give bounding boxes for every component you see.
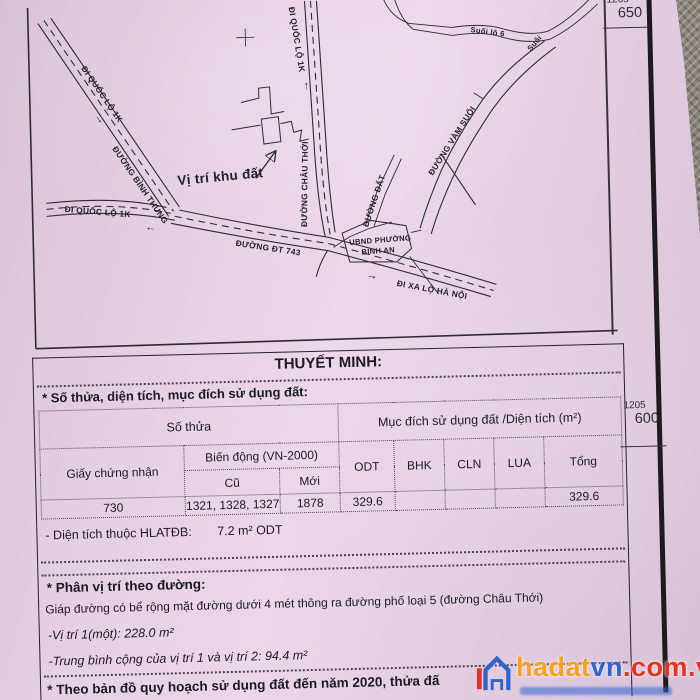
ubnd-label-line2: BÌNH AN <box>361 245 395 257</box>
location-map: ĐI QUỐC LỘ 1K → ĐƯỜNG BÌNH THUNG ĐI QUỐC… <box>0 0 660 357</box>
cell-moi: 1878 <box>280 493 340 513</box>
cell-cln <box>445 489 495 509</box>
watermark-part-hadat: hadat <box>516 652 591 682</box>
section2-line2: -Vị trí 1(một): 228.0 m² <box>48 625 174 642</box>
watermark-nhadatvn: hadatvn.com.vn <box>476 646 700 700</box>
road-label-vam-suoi: ĐƯỜNG VÀM SUỐI <box>425 104 477 177</box>
road-label-chau-thoi: ĐƯỜNG CHÂU THỚI <box>298 141 310 227</box>
watermark-text: hadatvn.com.vn <box>516 652 700 683</box>
map-parcel <box>231 86 310 179</box>
cell-lua <box>495 488 545 508</box>
map-cross-mark <box>236 28 254 46</box>
cell-odt: 329.6 <box>340 491 395 511</box>
hlatdb-label: - Diện tích thuộc HLATĐB: <box>45 525 192 543</box>
grid-label-600: 1205 600 <box>623 400 659 427</box>
cell-giay-chung-nhan: 730 <box>41 497 185 520</box>
grid-label-650: 1205 650 <box>606 0 642 21</box>
watermark-part-vn: vn <box>591 652 624 682</box>
road-arrow-nw-icon: → <box>92 111 108 127</box>
header-cln: CLN <box>444 438 495 490</box>
header-odt: ODT <box>339 440 395 492</box>
page-thick-border <box>646 0 668 692</box>
cell-cu: 1321, 1328, 1327 <box>185 494 280 515</box>
road-arrow-w-icon: ← <box>145 221 158 234</box>
section3-heading: * Theo bản đồ quy hoạch sử dụng đất đến … <box>47 673 440 698</box>
house-icon <box>476 652 514 694</box>
header-moi: Mới <box>279 467 340 494</box>
cell-bhk <box>395 490 445 510</box>
grid-northing: 650 <box>607 5 643 21</box>
cell-tong: 329.6 <box>545 486 624 507</box>
land-parcel-table: Số thửa Mục đích sử dụng đất /Diện tích … <box>38 396 624 519</box>
header-giay-chung-nhan: Giấy chứng nhận <box>40 446 185 501</box>
divider <box>41 560 625 576</box>
parcel-location-label: Vị trí khu đất <box>177 165 264 188</box>
header-lua: LUA <box>494 437 545 489</box>
road-label-dt-743: ĐƯỜNG ĐT 743 <box>235 237 302 258</box>
document-paper: ĐI QUỐC LỘ 1K → ĐƯỜNG BÌNH THUNG ĐI QUỐC… <box>0 0 700 700</box>
section2-line1: Giáp đường có bể rộng mặt đường dưới 4 m… <box>45 590 543 616</box>
watermark-part-domain: .com.vn <box>623 652 700 682</box>
header-bien-dong: Biến động (VN-2000) <box>184 442 340 471</box>
paper-content: ĐI QUỐC LỘ 1K → ĐƯỜNG BÌNH THUNG ĐI QUỐC… <box>0 0 700 700</box>
stream-label-suoi-lo-6: Suối lô 6 <box>470 25 505 38</box>
hlatdb-value: 7.2 m² ODT <box>217 523 283 539</box>
section2-line3: -Trung bình cộng của vị trí 1 và vị trí … <box>48 648 307 668</box>
road-arrow-e-icon: → <box>366 269 379 283</box>
header-cu: Cũ <box>184 468 280 496</box>
grid-northing: 600 <box>624 411 660 427</box>
header-tong: Tổng <box>544 435 623 488</box>
section2-heading: * Phân vị trí theo đường: <box>47 577 206 596</box>
watermark-subtext-bar <box>520 687 672 695</box>
road-label-xa-lo-ha-noi: ĐI XA LỘ HÀ NỘI <box>396 277 468 301</box>
road-arrow-n-icon: ↑ <box>303 80 309 92</box>
divider <box>41 547 625 563</box>
road-label-quoc-lo-1k-w: ĐI QUỐC LỘ 1K <box>64 203 131 219</box>
section1-heading: * Số thửa, diện tích, mục đích sử dụng đ… <box>42 384 308 405</box>
header-bhk: BHK <box>394 439 445 491</box>
hlatdb-line: - Diện tích thuộc HLATĐB: 7.2 m² ODT <box>45 523 282 543</box>
ubnd-label-line1: UBND PHƯỜNG <box>349 233 412 247</box>
